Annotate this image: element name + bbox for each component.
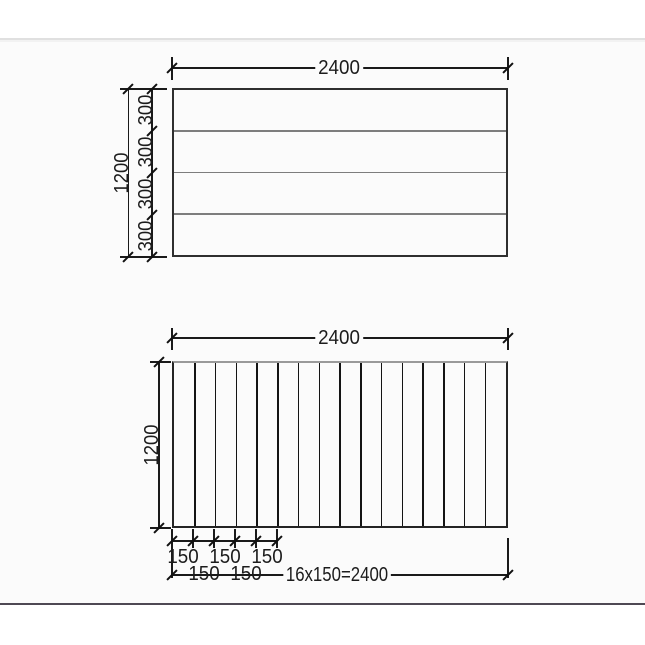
panel-board-line <box>422 363 424 526</box>
panel-row-line <box>174 130 506 132</box>
panel-board-line <box>277 363 279 526</box>
board-spacing-label: 150 <box>230 564 261 584</box>
panel-board-line <box>215 363 217 526</box>
panel-row-line <box>174 213 506 215</box>
panel-board-line <box>194 363 196 526</box>
bottom-drawing-panel-outline <box>172 361 508 528</box>
board-spacing-chain-line <box>172 540 279 541</box>
total-dimension-label: 16x150=2400 <box>283 565 390 585</box>
panel-board-line <box>360 363 362 526</box>
row-height-label: 300 <box>136 88 156 132</box>
row-height-label: 300 <box>136 172 156 216</box>
board-spacing-label: 150 <box>188 564 219 584</box>
top-separator-fade <box>0 40 645 42</box>
panel-board-line <box>256 363 258 526</box>
top-width-dimension-label: 2400 <box>315 58 362 78</box>
bottom-separator-line <box>0 603 645 605</box>
top-drawing-panel-outline <box>172 88 508 257</box>
bottom-width-dimension-label: 2400 <box>315 328 362 348</box>
panel-board-line <box>464 363 466 526</box>
panel-board-line <box>339 363 341 526</box>
panel-board-line <box>298 363 300 526</box>
row-height-label: 300 <box>136 130 156 174</box>
panel-board-line <box>485 363 487 526</box>
top-height-dimension-label: 1200 <box>112 151 132 195</box>
panel-board-line <box>381 363 383 526</box>
bottom-height-dimension-label: 1200 <box>142 423 162 467</box>
drawing-page: 2400 1200 300 300 300 300 2400 1200 150 … <box>0 0 645 645</box>
panel-row-line <box>174 172 506 174</box>
panel-board-line <box>443 363 445 526</box>
panel-board-line <box>402 363 404 526</box>
panel-board-line <box>236 363 238 526</box>
row-height-label: 300 <box>136 214 156 258</box>
panel-board-line <box>319 363 321 526</box>
